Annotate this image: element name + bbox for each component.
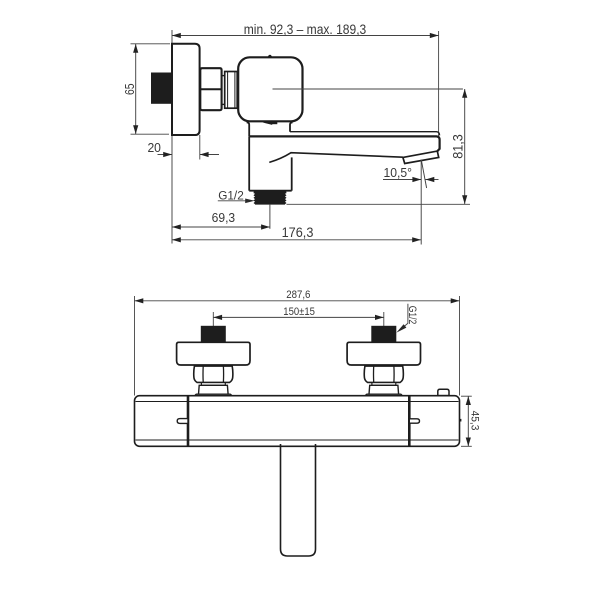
svg-text:81,3: 81,3	[450, 134, 465, 159]
svg-text:176,3: 176,3	[282, 225, 314, 240]
svg-text:150±15: 150±15	[283, 306, 315, 318]
svg-text:min. 92,3 – max. 189,3: min. 92,3 – max. 189,3	[244, 22, 367, 37]
svg-text:287,6: 287,6	[286, 289, 310, 301]
svg-text:65: 65	[122, 84, 137, 96]
svg-text:20: 20	[147, 140, 161, 155]
svg-text:G1/2: G1/2	[218, 188, 244, 202]
svg-text:10,5°: 10,5°	[384, 165, 413, 180]
svg-text:69,3: 69,3	[212, 210, 236, 225]
svg-text:45,3: 45,3	[469, 411, 481, 431]
